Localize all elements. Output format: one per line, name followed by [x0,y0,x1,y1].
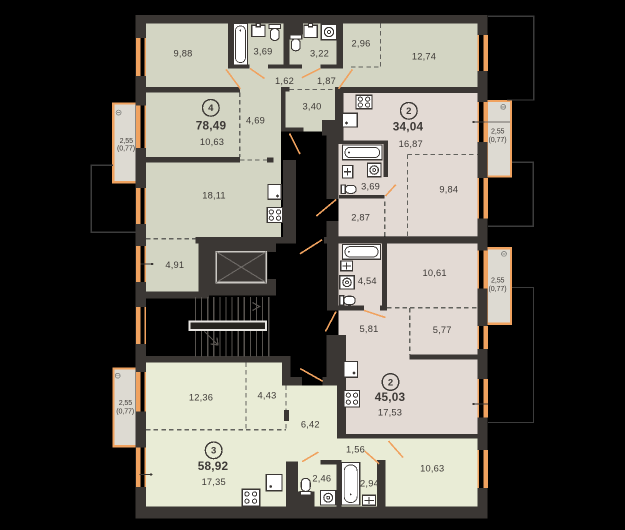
svg-text:9,88: 9,88 [174,48,193,58]
svg-text:2,55: 2,55 [491,128,505,136]
svg-text:6,42: 6,42 [301,420,320,430]
svg-text:(0,77): (0,77) [489,285,507,293]
svg-text:18,11: 18,11 [202,190,226,200]
svg-text:3,69: 3,69 [361,181,380,191]
svg-text:3,22: 3,22 [310,48,329,58]
svg-text:(0,77): (0,77) [489,136,507,144]
svg-text:16,87: 16,87 [399,139,423,149]
svg-text:4,69: 4,69 [246,115,265,125]
svg-text:2,96: 2,96 [352,38,371,48]
svg-text:78,49: 78,49 [196,119,227,133]
svg-text:3,69: 3,69 [254,46,273,56]
svg-text:4,54: 4,54 [358,276,377,286]
svg-text:5,81: 5,81 [360,324,379,334]
svg-text:2: 2 [388,377,393,388]
svg-text:3,40: 3,40 [303,101,322,111]
svg-text:4,43: 4,43 [258,390,277,400]
svg-text:10,61: 10,61 [422,268,446,278]
svg-text:17,53: 17,53 [378,407,402,417]
svg-text:2,55: 2,55 [119,399,133,407]
svg-text:45,03: 45,03 [375,390,406,404]
svg-text:12,74: 12,74 [412,51,436,61]
svg-text:1,87: 1,87 [317,76,336,86]
svg-text:4: 4 [208,103,214,114]
svg-text:4,91: 4,91 [165,260,184,270]
svg-text:9,84: 9,84 [439,184,458,194]
svg-text:2: 2 [406,106,411,117]
svg-text:58,92: 58,92 [198,459,229,473]
svg-text:12,36: 12,36 [189,392,213,402]
svg-text:34,04: 34,04 [393,120,424,134]
svg-text:2,55: 2,55 [491,277,505,285]
svg-text:17,35: 17,35 [202,477,226,487]
svg-text:1,62: 1,62 [275,76,294,86]
svg-text:2,46: 2,46 [312,473,331,483]
svg-text:2,87: 2,87 [351,212,370,222]
svg-text:10,63: 10,63 [200,137,224,147]
svg-text:5,77: 5,77 [433,325,452,335]
svg-text:3: 3 [211,446,216,457]
svg-text:1,56: 1,56 [346,445,365,455]
svg-text:(0,77): (0,77) [116,408,134,416]
svg-text:10,63: 10,63 [420,463,444,473]
svg-text:(0,77): (0,77) [117,144,135,152]
svg-text:2,94: 2,94 [360,478,379,488]
